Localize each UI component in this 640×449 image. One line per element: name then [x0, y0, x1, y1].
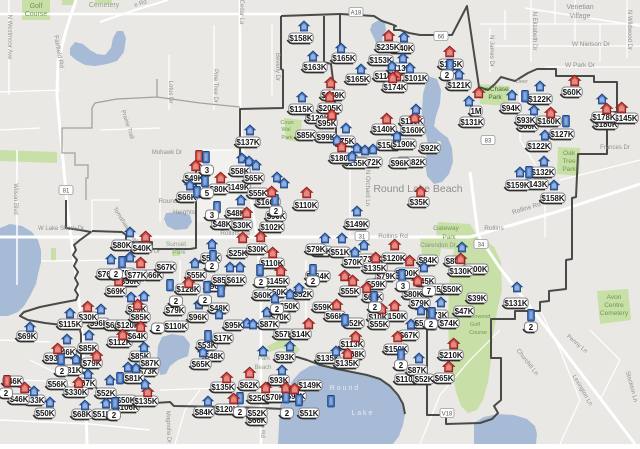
svg-text:$92K: $92K [421, 144, 440, 153]
svg-text:$93K: $93K [517, 116, 536, 125]
svg-text:$52K: $52K [97, 389, 116, 398]
svg-text:Park: Park [488, 94, 502, 101]
svg-text:$132K: $132K [531, 168, 555, 177]
svg-text:$159K: $159K [506, 181, 530, 190]
svg-text:2: 2 [112, 411, 117, 420]
svg-text:66: 66 [438, 35, 445, 41]
svg-text:2: 2 [210, 262, 215, 271]
svg-text:$210K: $210K [439, 351, 463, 360]
svg-text:Park: Park [442, 234, 456, 241]
svg-text:$60K: $60K [563, 88, 582, 97]
svg-text:$47K: $47K [455, 307, 474, 316]
svg-text:Wilson Blvd: Wilson Blvd [12, 183, 18, 214]
svg-text:$160K: $160K [537, 117, 561, 126]
svg-text:$110K: $110K [165, 322, 188, 331]
svg-text:Mohawk Dr: Mohawk Dr [152, 150, 182, 156]
svg-text:$130K: $130K [449, 267, 473, 276]
svg-text:$110K: $110K [295, 201, 318, 210]
svg-text:2: 2 [373, 303, 378, 312]
svg-text:$330K: $330K [64, 388, 88, 397]
svg-text:Rollins Rd: Rollins Rd [378, 233, 408, 240]
svg-text:Centre: Centre [604, 302, 624, 309]
svg-text:$84K: $84K [419, 256, 438, 265]
svg-text:W Lake Shore Dr: W Lake Shore Dr [38, 226, 84, 232]
svg-text:$51K: $51K [331, 248, 350, 257]
svg-text:$165K: $165K [346, 75, 370, 84]
svg-text:$52K: $52K [415, 375, 434, 384]
svg-text:$70K: $70K [344, 258, 363, 267]
svg-text:Cemetery: Cemetery [600, 310, 629, 317]
svg-text:2: 2 [60, 367, 65, 376]
svg-text:$55K: $55K [370, 320, 389, 329]
svg-text:Park: Park [562, 166, 576, 173]
svg-text:Heights: Heights [173, 209, 196, 216]
svg-text:$163K: $163K [303, 63, 327, 72]
svg-text:Cemetery: Cemetery [89, 2, 120, 9]
svg-text:$85K: $85K [131, 313, 150, 322]
svg-text:Tree: Tree [562, 158, 576, 165]
svg-text:2: 2 [174, 297, 179, 306]
svg-text:Pine Tree Dr: Pine Tree Dr [212, 69, 218, 103]
svg-text:3: 3 [210, 211, 215, 220]
svg-text:$61K: $61K [227, 276, 246, 285]
svg-text:$96K: $96K [391, 159, 410, 168]
svg-text:2: 2 [399, 361, 404, 370]
svg-text:$149K: $149K [226, 183, 250, 192]
svg-text:$135K: $135K [335, 359, 359, 368]
svg-text:$50K: $50K [36, 409, 55, 418]
svg-text:$101K: $101K [404, 74, 428, 83]
svg-text:$62K: $62K [240, 381, 259, 390]
svg-text:Magnolia Dr: Magnolia Dr [164, 411, 171, 444]
svg-text:$122K: $122K [528, 95, 552, 104]
svg-text:Coun: Coun [280, 120, 293, 126]
svg-text:$96K: $96K [189, 313, 208, 322]
svg-text:$95K: $95K [225, 321, 244, 330]
svg-text:$93K: $93K [276, 353, 295, 362]
svg-text:$135K: $135K [211, 383, 235, 392]
svg-text:Course: Course [25, 11, 48, 18]
svg-text:2: 2 [4, 389, 9, 398]
svg-text:$160K: $160K [401, 126, 425, 135]
svg-text:$87K: $87K [260, 320, 279, 329]
svg-text:A18: A18 [351, 11, 362, 17]
svg-text:$145K: $145K [614, 114, 638, 123]
svg-text:$235K: $235K [376, 43, 400, 52]
svg-text:$102K: $102K [260, 223, 284, 232]
svg-text:34: 34 [478, 243, 485, 249]
svg-text:1M: 1M [471, 107, 482, 116]
svg-text:$84K: $84K [195, 408, 214, 417]
svg-text:$51K: $51K [300, 409, 319, 418]
svg-text:Park: Park [172, 249, 186, 256]
svg-text:W Nielson Dr: W Nielson Dr [572, 41, 611, 48]
svg-text:Clarendon Dr: Clarendon Dr [420, 243, 456, 249]
svg-text:3: 3 [401, 282, 406, 291]
svg-text:$85K: $85K [297, 131, 316, 140]
svg-text:2: 2 [275, 305, 280, 314]
svg-text:$67K: $67K [157, 263, 176, 272]
svg-text:$30K: $30K [248, 245, 267, 254]
svg-text:$60K: $60K [254, 291, 273, 300]
svg-text:Park: Park [281, 135, 293, 141]
svg-text:L a k e: L a k e [352, 410, 373, 417]
svg-text:3: 3 [205, 166, 210, 175]
svg-text:$115K: $115K [59, 320, 82, 329]
svg-text:Wal: Wal [281, 127, 290, 133]
svg-text:$135K: $135K [134, 397, 158, 406]
svg-text:$50K: $50K [443, 285, 462, 294]
svg-text:R o u n d: R o u n d [330, 385, 359, 392]
svg-text:$131K: $131K [460, 118, 484, 127]
svg-text:N Orchard Ln: N Orchard Ln [364, 170, 370, 206]
svg-text:N James Dr: N James Dr [488, 35, 494, 67]
svg-text:Beach: Beach [254, 365, 271, 371]
svg-text:Venetian: Venetian [566, 4, 593, 11]
svg-text:$25K: $25K [229, 249, 248, 258]
svg-text:5: 5 [205, 189, 210, 198]
svg-text:2: 2 [274, 207, 279, 216]
svg-text:V18: V18 [442, 412, 453, 418]
svg-text:$74K: $74K [440, 319, 459, 328]
svg-text:$165K: $165K [332, 54, 356, 63]
svg-text:$35K: $35K [410, 198, 429, 207]
svg-text:$49K: $49K [185, 174, 204, 183]
svg-text:$69K: $69K [107, 287, 126, 296]
svg-text:$79K: $79K [307, 245, 326, 254]
svg-text:Deer: Deer [516, 79, 528, 85]
svg-text:2: 2 [311, 277, 316, 286]
svg-text:$70K: $70K [266, 393, 285, 402]
svg-text:$65K: $65K [245, 174, 264, 183]
svg-text:$158K: $158K [289, 34, 313, 43]
svg-text:31: 31 [359, 235, 366, 241]
svg-text:Cedar La: Cedar La [238, 0, 244, 25]
svg-text:$137K: $137K [236, 138, 260, 147]
svg-text:$158K: $158K [541, 194, 565, 203]
svg-text:2: 2 [114, 270, 119, 279]
svg-text:$14K: $14K [292, 330, 311, 339]
svg-text:$77K: $77K [128, 271, 147, 280]
svg-text:$69K: $69K [18, 332, 37, 341]
svg-text:N Westmoor Ave: N Westmoor Ave [6, 15, 12, 60]
svg-text:Course: Course [469, 330, 487, 336]
svg-text:81: 81 [63, 189, 70, 195]
svg-text:Avon: Avon [607, 294, 622, 301]
svg-text:W Park Dr: W Park Dr [565, 62, 596, 69]
svg-text:2: 2 [259, 278, 264, 287]
svg-text:$122K: $122K [527, 142, 551, 151]
svg-text:$120K: $120K [382, 254, 406, 263]
svg-text:Golf: Golf [470, 322, 481, 328]
svg-text:$65K: $65K [192, 360, 211, 369]
svg-text:$149K: $149K [345, 220, 369, 229]
svg-text:2: 2 [429, 320, 434, 329]
svg-text:$40K: $40K [133, 244, 152, 253]
svg-text:83: 83 [485, 139, 492, 145]
svg-text:$65K: $65K [435, 374, 454, 383]
svg-text:N Elizabeth Dr: N Elizabeth Dr [531, 12, 537, 51]
svg-text:$174K: $174K [383, 83, 407, 92]
svg-text:Golf: Golf [30, 3, 43, 10]
svg-text:$55K: $55K [249, 189, 268, 198]
svg-text:$115K: $115K [290, 105, 313, 114]
svg-text:$95K: $95K [318, 119, 337, 128]
svg-text:$135K: $135K [363, 264, 387, 273]
svg-text:N Wildwood Dr: N Wildwood Dr [626, 10, 632, 50]
svg-text:2: 2 [285, 409, 290, 418]
svg-text:2: 2 [203, 296, 208, 305]
svg-text:$149K: $149K [298, 381, 322, 390]
svg-text:$55K: $55K [341, 287, 360, 296]
svg-text:$80K: $80K [113, 241, 132, 250]
svg-text:$64K: $64K [128, 332, 147, 341]
svg-text:$81K: $81K [125, 374, 144, 383]
svg-text:$99K: $99K [317, 133, 336, 142]
svg-text:7: 7 [427, 287, 432, 296]
svg-text:2: 2 [238, 408, 243, 417]
svg-text:$87K: $87K [141, 359, 160, 368]
svg-text:Oak: Oak [563, 150, 576, 157]
svg-text:2: 2 [529, 323, 534, 332]
svg-text:2: 2 [445, 71, 450, 80]
svg-text:$94K: $94K [502, 104, 521, 113]
svg-text:$145K: $145K [265, 277, 289, 286]
svg-text:Frances Dr: Frances Dr [600, 145, 630, 151]
svg-text:$17K: $17K [214, 334, 233, 343]
svg-text:$39K: $39K [468, 294, 487, 303]
svg-text:$121K: $121K [447, 81, 471, 90]
svg-text:Village: Village [570, 13, 591, 20]
svg-text:$140K: $140K [372, 125, 396, 134]
svg-text:$52K: $52K [248, 409, 267, 418]
svg-text:$127K: $127K [550, 130, 574, 139]
svg-text:Lotus Dr: Lotus Dr [167, 81, 173, 104]
svg-text:$30K: $30K [233, 221, 252, 230]
svg-text:Sunset: Sunset [166, 241, 186, 248]
svg-text:$68K: $68K [73, 410, 92, 419]
svg-text:Gateway: Gateway [433, 225, 459, 232]
svg-text:$178K: $178K [592, 113, 616, 122]
svg-text:2: 2 [156, 324, 161, 333]
svg-text:Rollins: Rollins [484, 225, 504, 232]
svg-text:$131K: $131K [504, 299, 528, 308]
svg-text:Park: Park [258, 356, 271, 362]
svg-text:Beverly Dr: Beverly Dr [274, 53, 280, 81]
